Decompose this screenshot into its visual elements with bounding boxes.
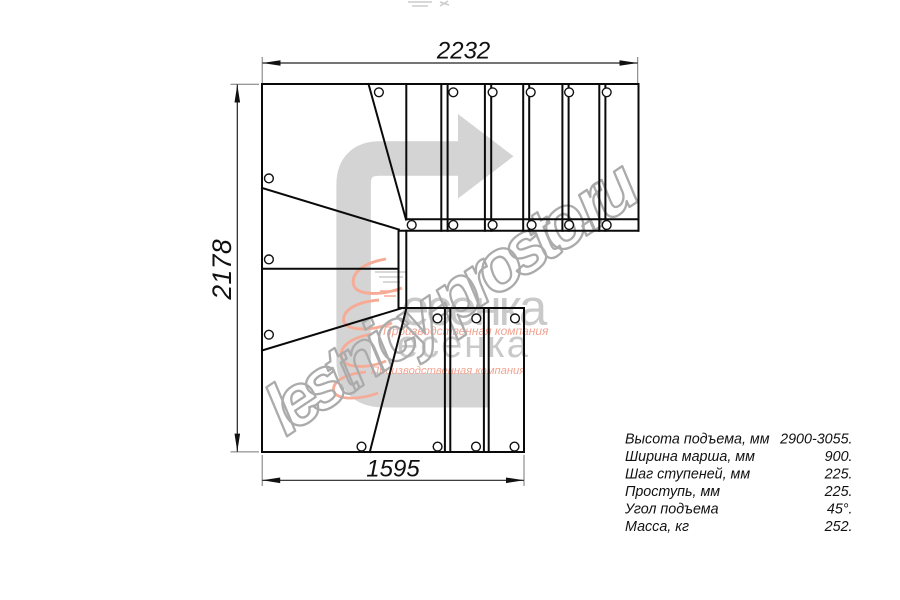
svg-text:Ширина марша, мм: Ширина марша, мм <box>625 449 755 465</box>
svg-text:2232: 2232 <box>436 38 490 65</box>
svg-text:2178: 2178 <box>207 239 237 301</box>
svg-text:45°.: 45°. <box>827 502 853 518</box>
svg-text:Шаг ступеней, мм: Шаг ступеней, мм <box>625 466 750 482</box>
svg-text:225.: 225. <box>824 466 853 482</box>
svg-text:900.: 900. <box>825 449 853 465</box>
svg-text:Угол подъема: Угол подъема <box>624 502 719 518</box>
svg-text:Высота подъема, мм: Высота подъема, мм <box>625 431 770 447</box>
svg-text:252.: 252. <box>824 519 853 535</box>
svg-text:Проступь, мм: Проступь, мм <box>625 484 720 500</box>
svg-text:Масса, кг: Масса, кг <box>625 519 689 535</box>
svg-text:1595: 1595 <box>366 455 420 482</box>
svg-text:2900-3055.: 2900-3055. <box>779 431 852 447</box>
svg-text:225.: 225. <box>824 484 853 500</box>
